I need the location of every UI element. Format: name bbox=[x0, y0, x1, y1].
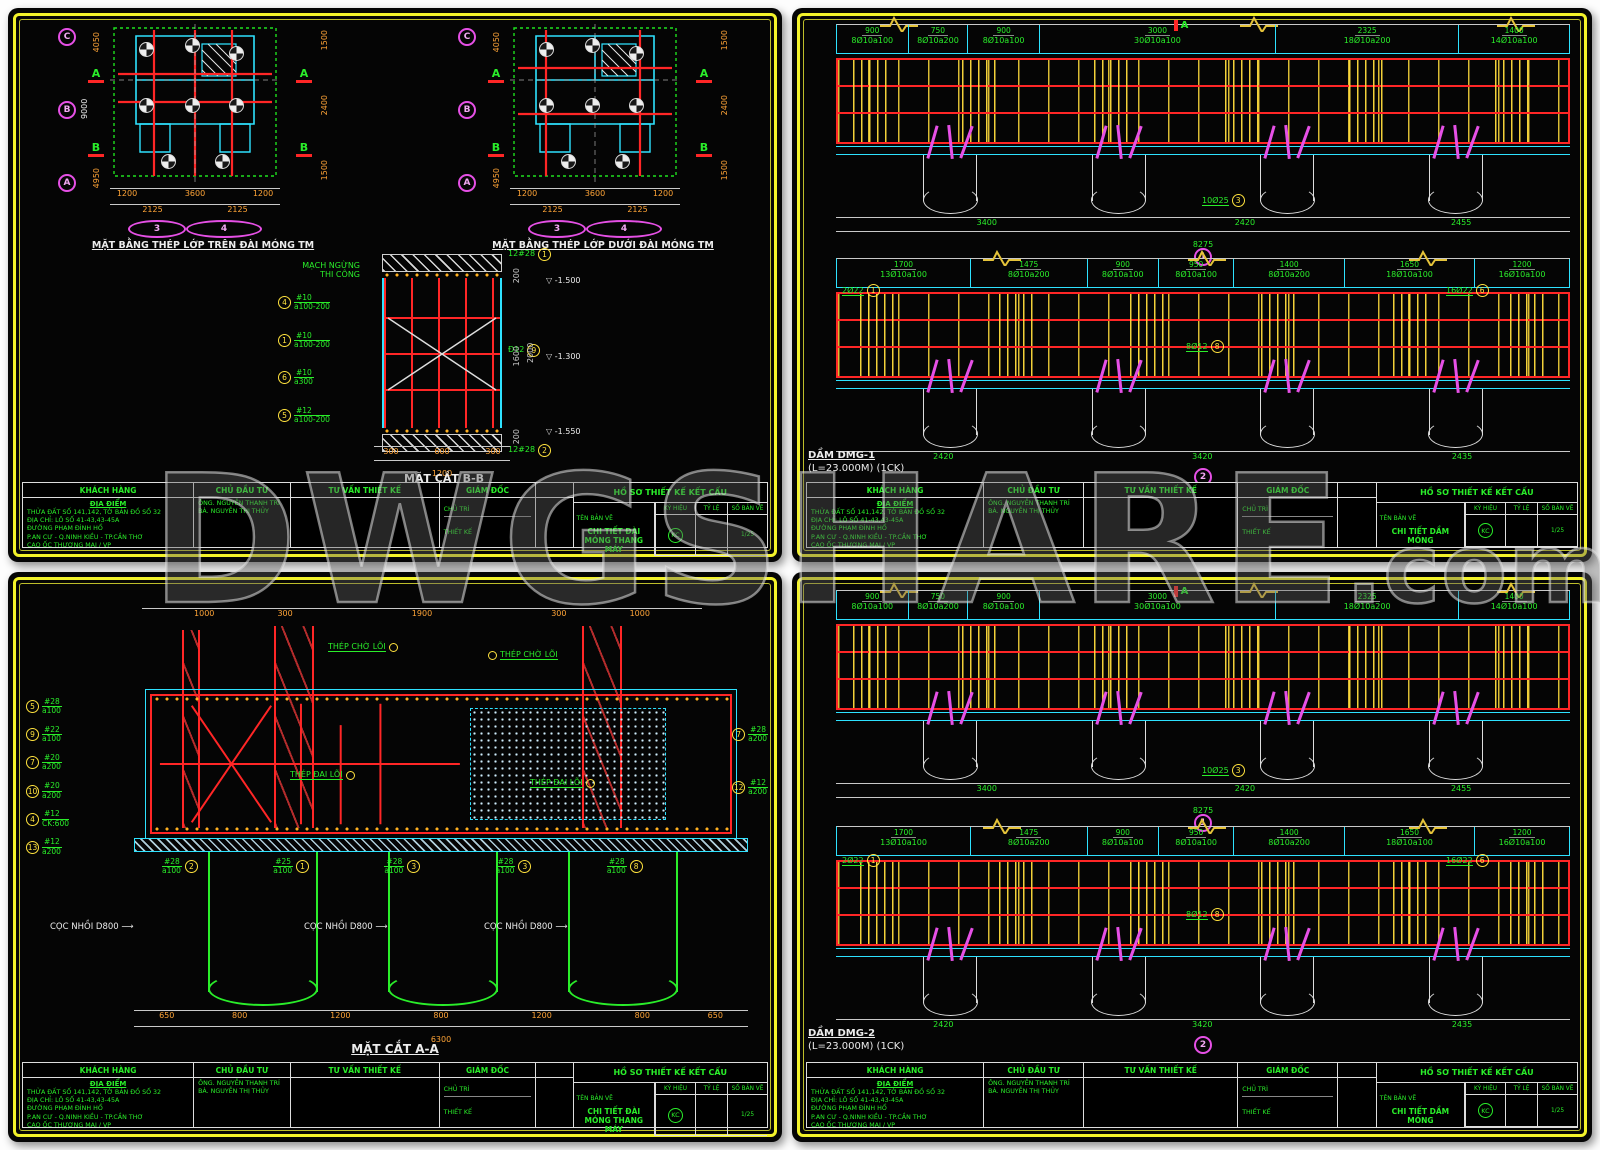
stirrup-segment: 9008Ø10a100 bbox=[1088, 259, 1159, 287]
rebar-callout: 5 #28a100 bbox=[26, 698, 62, 716]
tb-drawing-name: TÊN BẢN VẼ CHI TIẾT ĐÀI MÓNG THANG MÁY bbox=[574, 503, 655, 556]
grid-row-bubbles: CBA bbox=[58, 28, 76, 192]
rebar-chip: 8Ø128 bbox=[1186, 908, 1224, 921]
lean-concrete-strip bbox=[134, 838, 748, 852]
bored-pile bbox=[388, 852, 498, 992]
section-core bbox=[382, 278, 502, 428]
construction-joint-note: MẠCH NGỪNGTHI CÔNG bbox=[274, 262, 360, 280]
section-body bbox=[382, 254, 502, 452]
beam-body bbox=[836, 860, 1570, 946]
pile-label: CỌC NHỒI D800 bbox=[304, 922, 388, 932]
tb-header: KHÁCH HÀNG bbox=[23, 483, 193, 498]
stirrup-segment: 232518Ø10a200 bbox=[1276, 591, 1459, 619]
dims-left: 40504950 bbox=[92, 32, 101, 188]
section-aa-title: MẶT CẮT A-A bbox=[22, 1042, 768, 1056]
rebar-callout: 7 #28a200 bbox=[732, 726, 768, 744]
section-mark-a-right: A bbox=[296, 68, 312, 83]
dims-bottom-1: 120036001200 bbox=[510, 188, 680, 202]
formwork-line bbox=[836, 948, 1570, 957]
dims-bottom-2: 21252125 bbox=[510, 204, 680, 218]
pile-label: CỌC NHỒI D800 bbox=[50, 922, 134, 932]
grid-bubble: A bbox=[58, 174, 76, 192]
bottom-dims: 65080012008001200800650 bbox=[134, 1010, 748, 1024]
rebar-chip: 10Ø253 bbox=[1202, 194, 1245, 207]
section-bb: MẠCH NGỪNGTHI CÔNG 4 #10a100-200 1 #10a1… bbox=[274, 248, 604, 480]
stirrup-segment: 7508Ø10a200 bbox=[909, 591, 969, 619]
level-mark: -1.300 bbox=[546, 352, 581, 361]
sheet-beam-dmg1: A 9008Ø10a100 7508Ø10a200 9008Ø10a100 bbox=[792, 8, 1592, 562]
level-marks: -1.500-1.300-1.550 bbox=[546, 276, 581, 436]
right-callouts: 7 #28a200 12 #12a200 bbox=[732, 726, 768, 796]
pile bbox=[923, 389, 977, 449]
plan-bottom-rebar-layer: CBA 40504950 A B bbox=[458, 24, 748, 252]
total-dim: 8275 bbox=[836, 797, 1570, 811]
stirrup-segment: 300030Ø10a100 bbox=[1040, 591, 1276, 619]
stirrup-segments: 170013Ø10a100 14758Ø10a200 9008Ø10a100 9… bbox=[836, 826, 1570, 856]
pile-target-symbol bbox=[585, 38, 600, 53]
rebar-callout: 6 #10a300 bbox=[278, 369, 314, 387]
rebar-callout: 1 #10a100-200 bbox=[278, 332, 330, 350]
pile bbox=[1092, 155, 1146, 215]
beam-name: DẦM DMG-1(L=23.000M) (1CK) bbox=[808, 450, 904, 475]
pile-target-symbol bbox=[629, 98, 644, 113]
waiting-steel-label: THÉP CHỜ LÕI bbox=[328, 642, 398, 652]
stirrup-segment: 232518Ø10a200 bbox=[1276, 25, 1459, 53]
grid-bubble: 4 bbox=[186, 220, 262, 238]
rebar-chip: 10Ø253 bbox=[1202, 764, 1245, 777]
pile bbox=[1260, 155, 1314, 215]
core-tie-label: THÉP ĐAI LÕI bbox=[290, 770, 355, 780]
beam-elevation-row1: A 9008Ø10a100 7508Ø10a200 9008Ø10a100 bbox=[836, 590, 1570, 832]
cad-screenshot-page: CBA 9000 40504950 A B bbox=[0, 0, 1600, 1150]
pile bbox=[1092, 389, 1146, 449]
level-mark: -1.500 bbox=[546, 276, 581, 285]
pile bbox=[1429, 721, 1483, 781]
pile-target-symbol bbox=[229, 98, 244, 113]
bottom-bar-callout: 12#282 bbox=[508, 444, 551, 457]
dims-bottom: 300600300 bbox=[374, 446, 510, 460]
rebar-callout: 4 #12CK:600 bbox=[26, 810, 69, 828]
bottom-dim-total: 6300 bbox=[134, 1026, 748, 1040]
stirrup-segment: 7508Ø10a200 bbox=[909, 25, 969, 53]
beam-elevation-row1: A 9008Ø10a100 7508Ø10a200 9008Ø10a100 bbox=[836, 24, 1570, 266]
stirrup-segments: 9008Ø10a100 7508Ø10a200 9008Ø10a100 3000… bbox=[836, 24, 1570, 54]
formwork-line bbox=[836, 712, 1570, 721]
stirrup-segment: 14008Ø10a200 bbox=[1234, 827, 1345, 855]
stirrup-segment: 9008Ø10a100 bbox=[968, 591, 1040, 619]
stirrup-segment: 14758Ø10a200 bbox=[971, 827, 1087, 855]
grid-col-bubbles: 34 bbox=[128, 220, 262, 238]
stirrup-segment: 9508Ø10a100 bbox=[1159, 827, 1234, 855]
pile-target-symbol bbox=[215, 154, 230, 169]
tb-header: TƯ VẤN THIẾT KẾ bbox=[291, 483, 439, 498]
rebar-callout: 4 #10a100-200 bbox=[278, 294, 330, 312]
span-dims: 242034202435 bbox=[836, 451, 1570, 465]
stirrup-segment: 165018Ø10a100 bbox=[1345, 259, 1475, 287]
pile-target-symbol bbox=[585, 98, 600, 113]
stirrup-segment: 9008Ø10a100 bbox=[1088, 827, 1159, 855]
stirrup-segment: 140014Ø10a100 bbox=[1459, 591, 1570, 619]
rebar-chip: 16Ø226 bbox=[1446, 284, 1489, 297]
rebar-chip: 16Ø226 bbox=[1446, 854, 1489, 867]
pile bbox=[923, 957, 977, 1017]
rebar-chip: 2Ø221 bbox=[842, 284, 880, 297]
stirrup-segment: 140014Ø10a100 bbox=[1459, 25, 1570, 53]
rebar-chip: 8Ø128 bbox=[1186, 340, 1224, 353]
stirrup-segment: 120016Ø10a100 bbox=[1475, 827, 1570, 855]
left-callouts: 5 #28a100 9 #22a100 7 #20a200 10 bbox=[26, 698, 69, 856]
top-hatch-band bbox=[382, 254, 502, 272]
section-mark-b-right: B bbox=[696, 142, 712, 157]
rebar-callout: 13 #12a200 bbox=[26, 838, 62, 856]
stirrup-segment: 165018Ø10a100 bbox=[1345, 827, 1475, 855]
section-mark-a-left: A bbox=[488, 68, 504, 83]
pile-target-symbol bbox=[629, 46, 644, 61]
tb-designer bbox=[291, 498, 439, 547]
grid-bubble-row: 2 bbox=[836, 1036, 1570, 1054]
tb-cells: KÝ HIỆUTỶ LỆSỐ BẢN VẼ KC 1/25 bbox=[655, 503, 767, 556]
pile-target-symbol bbox=[139, 98, 154, 113]
pile-target-symbol bbox=[539, 98, 554, 113]
dims-bottom-2: 21252125 bbox=[110, 204, 280, 218]
tb-owner: ÔNG. NGUYỄN THANH TRÍBÀ. NGUYỄN THỊ THỦY bbox=[194, 498, 290, 547]
stirrup-segment: 9008Ø10a100 bbox=[968, 25, 1040, 53]
beam-body bbox=[836, 292, 1570, 378]
section-mark-b-right: B bbox=[296, 142, 312, 157]
pile-target-symbol bbox=[185, 38, 200, 53]
pile bbox=[1429, 389, 1483, 449]
pile bbox=[1260, 957, 1314, 1017]
title-block: KHÁCH HÀNG ĐỊA ĐIỂM THỬA ĐẤT SỐ 141,142,… bbox=[22, 1062, 768, 1128]
stirrup-segment: 9008Ø10a100 bbox=[837, 25, 909, 53]
pile-target-symbol bbox=[185, 98, 200, 113]
grid-bubble: A bbox=[458, 174, 476, 192]
bored-pile bbox=[568, 852, 678, 992]
beam-name: DẦM DMG-2(L=23.000M) (1CK) bbox=[808, 1028, 904, 1053]
sheet-section-aa: 100030019003001000 THÉP CHỜ LÕI THÉP CHỜ… bbox=[8, 572, 782, 1142]
section-mark-b-left: B bbox=[88, 142, 104, 157]
rebar-callout: 12 #12a200 bbox=[732, 779, 768, 797]
stirrup-segment: 300030Ø10a100 bbox=[1040, 25, 1276, 53]
grid-row-bubbles: CBA bbox=[458, 28, 476, 192]
rebar-callout: 5 #12a100-200 bbox=[278, 407, 330, 425]
pile-target-symbol bbox=[539, 42, 554, 57]
stirrup-segment: 9008Ø10a100 bbox=[837, 591, 909, 619]
pile bbox=[1429, 957, 1483, 1017]
grid-bubble: C bbox=[458, 28, 476, 46]
pile bbox=[1260, 389, 1314, 449]
grid-bubble: B bbox=[58, 101, 76, 119]
top-bar-callout: 12#281 bbox=[508, 248, 551, 261]
grid-bubble: 3 bbox=[528, 220, 586, 238]
plan-top-rebar-layer: CBA 9000 40504950 A B bbox=[58, 24, 348, 252]
rebar-callout: 9 #22a100 bbox=[26, 726, 62, 744]
title-block: KHÁCH HÀNG ĐỊA ĐIỂM THỬA ĐẤT SỐ 141,142,… bbox=[22, 482, 768, 548]
pile-target-symbol bbox=[561, 154, 576, 169]
tb-header: CHỦ ĐẦU TƯ bbox=[194, 483, 290, 498]
rebar-callout: 10 #20a200 bbox=[26, 782, 62, 800]
vertical-dim-total: 2000 bbox=[526, 308, 535, 398]
stirrup-segment: 170013Ø10a100 bbox=[837, 827, 971, 855]
vertical-dims: 2001600200 bbox=[512, 268, 521, 444]
section-callouts: 4 #10a100-200 1 #10a100-200 6 #10a300 bbox=[278, 294, 330, 424]
stirrup-segment: 170013Ø10a100 bbox=[837, 259, 971, 287]
bored-pile bbox=[208, 852, 318, 992]
pile bbox=[923, 155, 977, 215]
dims-bottom-1: 120036001200 bbox=[110, 188, 280, 202]
pile-target-symbol bbox=[229, 46, 244, 61]
pile-label: CỌC NHỒI D800 bbox=[484, 922, 568, 932]
section-mark-a-left: A bbox=[88, 68, 104, 83]
section-mark-b-left: B bbox=[488, 142, 504, 157]
formwork-line bbox=[836, 380, 1570, 389]
pile bbox=[1092, 957, 1146, 1017]
grid-bubble: 4 bbox=[586, 220, 662, 238]
section-mark-a-right: A bbox=[696, 68, 712, 83]
grid-col-bubbles: 34 bbox=[528, 220, 662, 238]
tb-header: GIÁM ĐỐC bbox=[440, 483, 536, 498]
stirrup-segment: 14758Ø10a200 bbox=[971, 259, 1087, 287]
rebar-callout: 7 #20a200 bbox=[26, 754, 62, 772]
pile bbox=[1092, 721, 1146, 781]
grid-bubble: 3 bbox=[128, 220, 186, 238]
grid-bubble: B bbox=[458, 101, 476, 119]
dims-right: 150024001500 bbox=[320, 30, 329, 180]
stirrup-segment: 14008Ø10a200 bbox=[1234, 259, 1345, 287]
pile-row bbox=[836, 155, 1570, 217]
tb-director: CHỦ TRÌTHIẾT KẾ bbox=[440, 498, 536, 547]
level-mark: -1.550 bbox=[546, 427, 581, 436]
rebar-chip: 2Ø221 bbox=[842, 854, 880, 867]
core-tie-label: THÉP ĐAI LÕI bbox=[530, 778, 595, 788]
pile-row bbox=[836, 389, 1570, 451]
pile-cap-section bbox=[150, 694, 732, 834]
beam-body bbox=[836, 58, 1570, 144]
title-block: KHÁCH HÀNG ĐỊA ĐIỂM THỬA ĐẤT SỐ 141,142,… bbox=[806, 482, 1578, 548]
top-dims: 100030019003001000 bbox=[142, 608, 702, 622]
tb-location: ĐỊA ĐIỂM THỬA ĐẤT SỐ 141,142, TỜ BẢN ĐỒ … bbox=[23, 498, 193, 547]
sheet-foundation-plans: CBA 9000 40504950 A B bbox=[8, 8, 782, 562]
stirrup-segment: 9508Ø10a100 bbox=[1159, 259, 1234, 287]
span-dims: 340024202455 bbox=[836, 217, 1570, 231]
pile-target-symbol bbox=[615, 154, 630, 169]
tb-right-header: HỒ SƠ THIẾT KẾ KẾT CẤU bbox=[574, 483, 767, 503]
pile-target-symbol bbox=[139, 42, 154, 57]
title-block: KHÁCH HÀNG ĐỊA ĐIỂM THỬA ĐẤT SỐ 141,142,… bbox=[806, 1062, 1578, 1128]
dims-right: 150024001500 bbox=[720, 30, 729, 180]
sheet-beam-dmg2: A 9008Ø10a100 7508Ø10a200 9008Ø10a100 bbox=[792, 572, 1592, 1142]
total-dim: 8275 bbox=[836, 231, 1570, 245]
span-dims: 242034202435 bbox=[836, 1019, 1570, 1033]
stirrup-segments: 9008Ø10a100 7508Ø10a200 9008Ø10a100 3000… bbox=[836, 590, 1570, 620]
span-dims: 340024202455 bbox=[836, 783, 1570, 797]
pile-target-symbol bbox=[161, 154, 176, 169]
pile bbox=[923, 721, 977, 781]
grid-bubble: C bbox=[58, 28, 76, 46]
pile-row bbox=[836, 957, 1570, 1019]
kc-symbol: KC bbox=[668, 528, 683, 543]
stirrup-segment: 120016Ø10a100 bbox=[1475, 259, 1570, 287]
waiting-steel-label: THÉP CHỜ LÕI bbox=[488, 650, 558, 660]
pile bbox=[1260, 721, 1314, 781]
beam-body bbox=[836, 624, 1570, 710]
formwork-line bbox=[836, 146, 1570, 155]
pile bbox=[1429, 155, 1483, 215]
dims-left: 40504950 bbox=[492, 32, 501, 188]
